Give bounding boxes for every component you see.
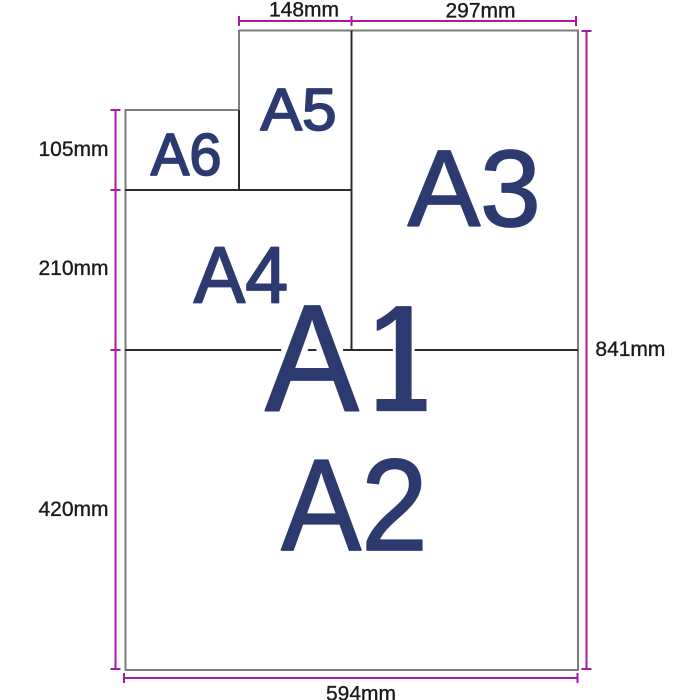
svg-text:148mm: 148mm xyxy=(269,0,339,21)
svg-text:A2: A2 xyxy=(281,432,428,578)
svg-text:A4: A4 xyxy=(194,231,288,320)
svg-text:A6: A6 xyxy=(151,122,222,188)
svg-text:841mm: 841mm xyxy=(595,338,665,361)
svg-text:297mm: 297mm xyxy=(445,0,515,23)
svg-text:A3: A3 xyxy=(408,128,541,250)
svg-text:105mm: 105mm xyxy=(38,138,108,161)
svg-text:A5: A5 xyxy=(261,77,337,143)
svg-text:420mm: 420mm xyxy=(38,498,108,521)
svg-text:210mm: 210mm xyxy=(38,257,108,280)
svg-text:594mm: 594mm xyxy=(326,683,396,700)
